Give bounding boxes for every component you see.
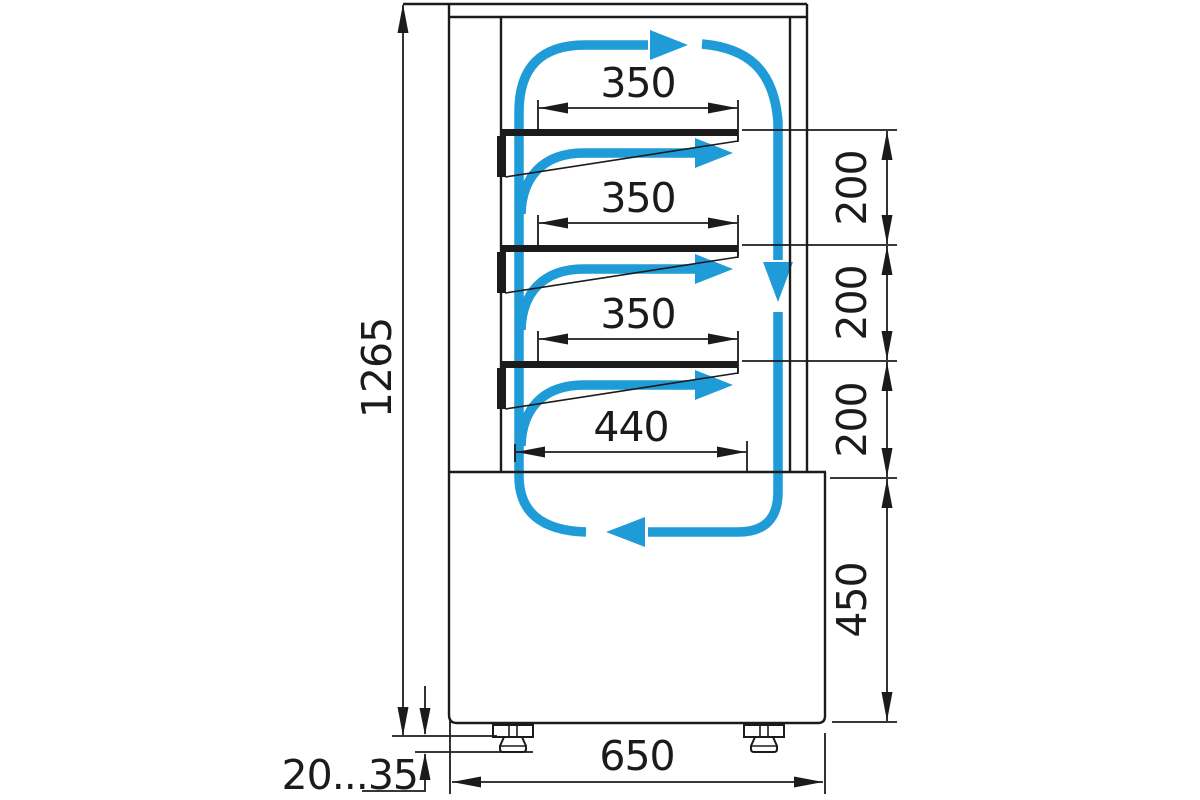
foot-left <box>493 723 533 752</box>
dim-200-2-arrow-down-icon <box>882 331 893 360</box>
airflow-top-arrow-icon <box>650 30 688 60</box>
foot-left-pad <box>500 737 526 752</box>
dim-350-3-arrow-right-icon <box>708 334 737 345</box>
dim-gap-200-2: 200 <box>828 246 893 360</box>
dim-bottom-shelf-depth: 440 <box>515 403 747 471</box>
dim-200-1-arrow-down-icon <box>882 215 893 244</box>
dim-gap-200-1: 200 <box>828 131 893 244</box>
dim-1265-arrow-down-icon <box>398 707 409 736</box>
dim-350-2-arrow-right-icon <box>708 218 737 229</box>
airflow-down-arrow-icon <box>763 262 793 302</box>
dim-200-3-arrow-down-icon <box>882 448 893 477</box>
dim-shelf-depth-2: 350 <box>538 174 738 256</box>
foot-right-pad <box>751 737 777 752</box>
dim-feet-label: 20...35 <box>282 751 418 799</box>
cabinet-structure <box>403 4 826 723</box>
base-outline <box>449 472 825 723</box>
dim-shelf-depth-1: 350 <box>538 59 738 140</box>
foot-right-flange <box>744 725 784 737</box>
dim-350-1-arrow-left-icon <box>539 103 568 114</box>
airflow-return-arrow-icon <box>606 517 645 547</box>
dim-350-1-arrow-right-icon <box>708 103 737 114</box>
dim-feet-arrow-up-icon <box>420 753 431 780</box>
dim-450-label: 450 <box>828 562 876 637</box>
dim-200-3-arrow-up-icon <box>882 362 893 391</box>
dim-350-3-label: 350 <box>600 290 675 338</box>
dim-overall-height: 1265 <box>353 4 409 736</box>
dim-shelf-depth-3: 350 <box>538 290 738 372</box>
dim-350-2-label: 350 <box>600 174 675 222</box>
dim-350-3-arrow-left-icon <box>539 334 568 345</box>
dim-200-1-arrow-up-icon <box>882 131 893 160</box>
dim-350-1-label: 350 <box>600 59 675 107</box>
dim-200-3-label: 200 <box>828 382 876 457</box>
dim-450-arrow-up-icon <box>882 479 893 508</box>
dim-feet-arrow-down-icon <box>420 708 431 735</box>
dim-1265-arrow-up-icon <box>398 4 409 33</box>
dim-1265-label: 1265 <box>353 318 401 418</box>
dim-650-label: 650 <box>599 732 674 780</box>
dim-200-2-arrow-up-icon <box>882 246 893 275</box>
dim-base-height-450: 450 <box>828 479 893 721</box>
foot-left-flange <box>493 725 533 737</box>
shelf-1-bracket <box>497 136 506 177</box>
dim-450-arrow-down-icon <box>882 692 893 721</box>
dim-440-arrow-right-icon <box>717 447 746 458</box>
technical-drawing-page: 1265 350 350 350 440 <box>0 0 1200 800</box>
shelf-3 <box>501 361 738 368</box>
shelf-2 <box>501 245 738 252</box>
dim-200-1-label: 200 <box>828 150 876 225</box>
dim-650-arrow-right-icon <box>794 777 823 788</box>
dim-200-2-label: 200 <box>828 265 876 340</box>
dim-440-label: 440 <box>593 403 668 451</box>
shelf-1 <box>501 129 738 136</box>
dim-right-chain: 200 200 200 450 <box>742 130 897 722</box>
display-case-cross-section: 1265 350 350 350 440 <box>0 0 1200 800</box>
dim-650-arrow-left-icon <box>452 777 481 788</box>
shelf-3-bracket <box>497 368 506 409</box>
dim-350-2-arrow-left-icon <box>539 218 568 229</box>
dim-feet-adjustment: 20...35 <box>282 686 431 799</box>
shelf-2-bracket <box>497 252 506 293</box>
foot-right <box>744 723 784 752</box>
dim-gap-200-3: 200 <box>828 362 893 477</box>
